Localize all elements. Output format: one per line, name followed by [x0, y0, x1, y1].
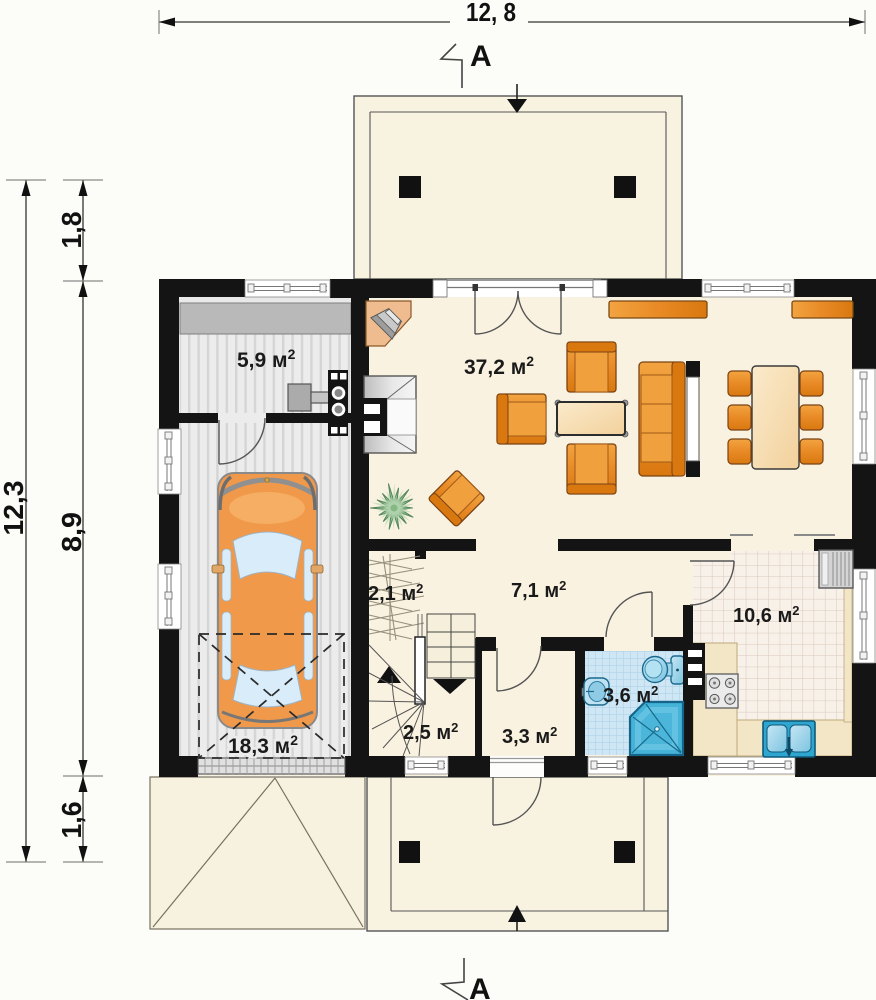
- svg-text:8,9: 8,9: [56, 512, 87, 552]
- svg-text:12, 8: 12, 8: [466, 0, 516, 27]
- svg-text:12,3: 12,3: [0, 481, 29, 536]
- svg-text:A: A: [470, 40, 492, 73]
- svg-text:37,2 м2: 37,2 м2: [464, 353, 534, 379]
- svg-text:3,3 м2: 3,3 м2: [502, 724, 557, 748]
- svg-text:1,6: 1,6: [56, 802, 87, 839]
- svg-text:5,9 м2: 5,9 м2: [237, 346, 296, 372]
- svg-text:18,3 м2: 18,3 м2: [228, 732, 298, 758]
- svg-text:1,8: 1,8: [56, 212, 87, 249]
- svg-text:3,6 м2: 3,6 м2: [603, 683, 658, 707]
- svg-text:2,5 м2: 2,5 м2: [403, 720, 458, 744]
- svg-text:A: A: [469, 973, 491, 1000]
- svg-text:2,1 м2: 2,1 м2: [368, 581, 423, 605]
- svg-text:10,6 м2: 10,6 м2: [733, 603, 800, 627]
- svg-text:7,1 м2: 7,1 м2: [511, 578, 566, 602]
